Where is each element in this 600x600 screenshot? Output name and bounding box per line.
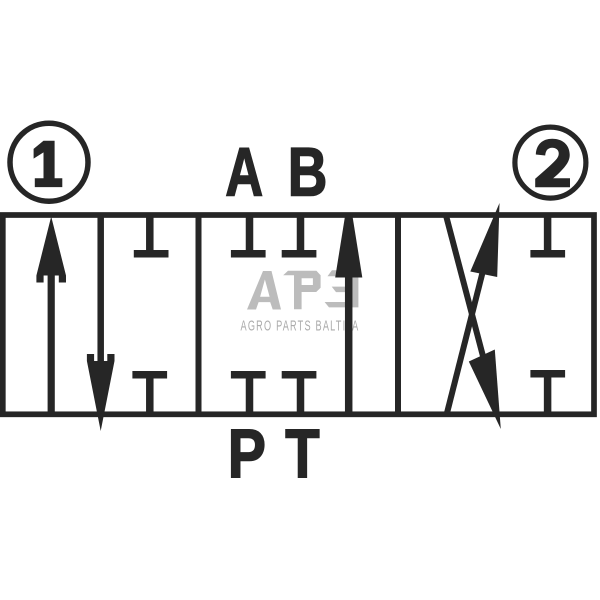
svg-text:A: A: [225, 133, 263, 210]
svg-text:B: B: [288, 135, 328, 211]
svg-text:P: P: [228, 416, 266, 492]
svg-text:T: T: [285, 416, 319, 493]
svg-text:AGRO PARTS BALTIJA: AGRO PARTS BALTIJA: [241, 317, 360, 334]
